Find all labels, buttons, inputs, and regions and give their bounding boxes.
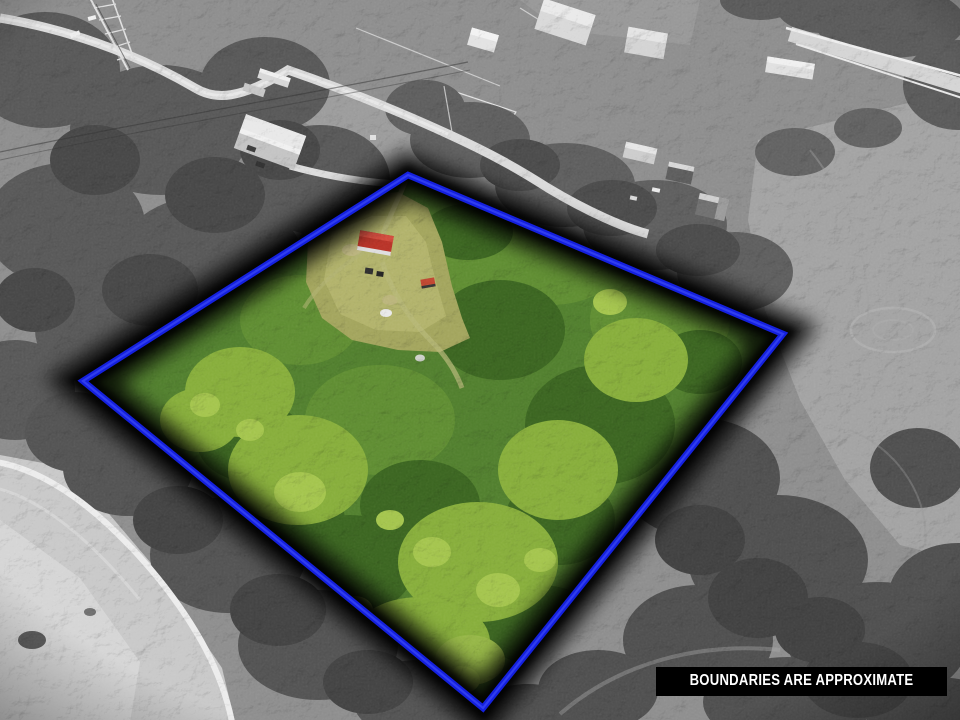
aerial-photo-canvas bbox=[0, 0, 960, 720]
boundaries-disclaimer-text: BOUNDARIES ARE APPROXIMATE bbox=[690, 673, 914, 689]
aerial-property-photo: BOUNDARIES ARE APPROXIMATE bbox=[0, 0, 960, 720]
boundaries-disclaimer: BOUNDARIES ARE APPROXIMATE bbox=[656, 667, 947, 696]
